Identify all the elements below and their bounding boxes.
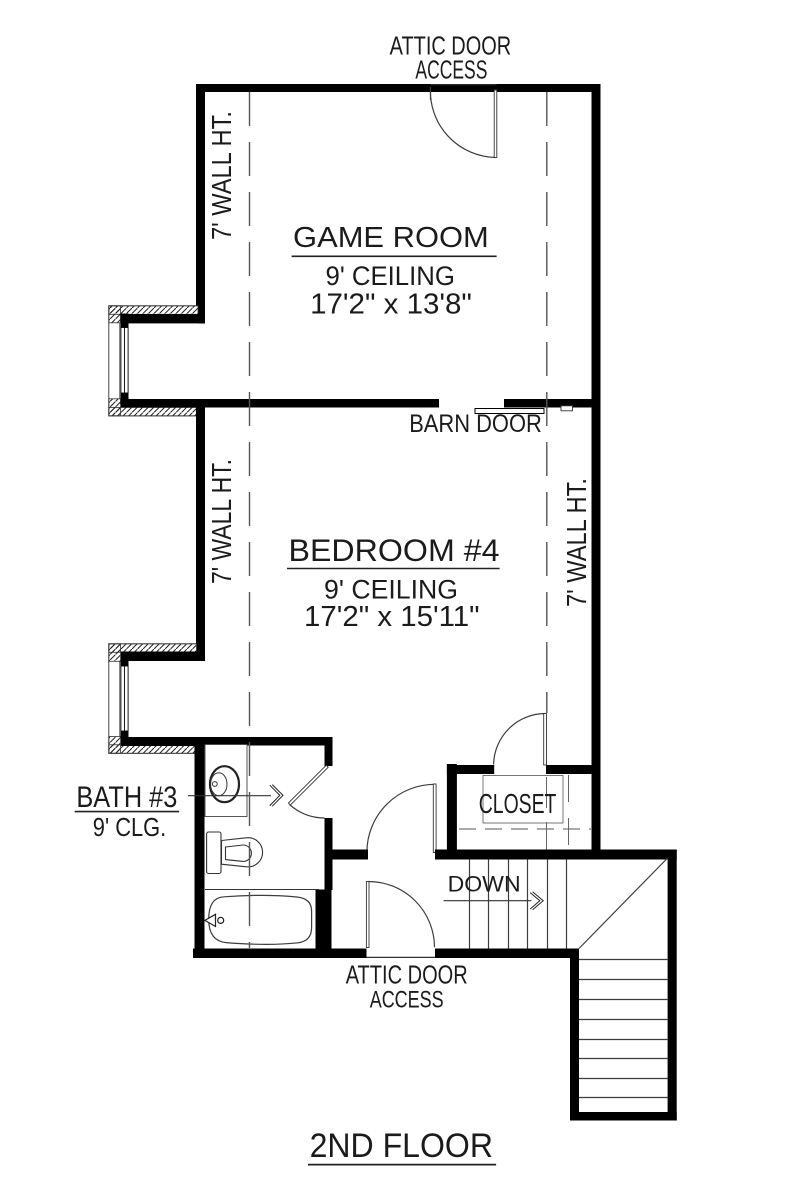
svg-text:17'2" x 13'8": 17'2" x 13'8" <box>310 289 472 321</box>
svg-text:7' WALL HT.: 7' WALL HT. <box>206 111 237 240</box>
svg-text:ACCESS: ACCESS <box>415 54 487 84</box>
svg-text:ACCESS: ACCESS <box>370 987 444 1014</box>
svg-text:9' CEILING: 9' CEILING <box>324 575 458 605</box>
svg-text:ATTIC DOOR: ATTIC DOOR <box>346 962 468 990</box>
svg-text:17'2" x 15'11": 17'2" x 15'11" <box>304 601 480 633</box>
svg-text:7' WALL HT.: 7' WALL HT. <box>206 459 237 584</box>
svg-text:9' CLG.: 9' CLG. <box>93 812 166 842</box>
svg-text:GAME ROOM: GAME ROOM <box>293 222 489 254</box>
svg-text:7' WALL HT.: 7' WALL HT. <box>561 478 592 607</box>
svg-text:2ND FLOOR: 2ND FLOOR <box>310 1127 493 1165</box>
svg-text:CLOSET: CLOSET <box>479 788 557 819</box>
svg-text:BATH #3: BATH #3 <box>76 781 177 814</box>
svg-text:DOWN: DOWN <box>448 871 521 896</box>
svg-text:9' CEILING: 9' CEILING <box>326 261 455 291</box>
svg-text:BEDROOM #4: BEDROOM #4 <box>289 532 500 568</box>
